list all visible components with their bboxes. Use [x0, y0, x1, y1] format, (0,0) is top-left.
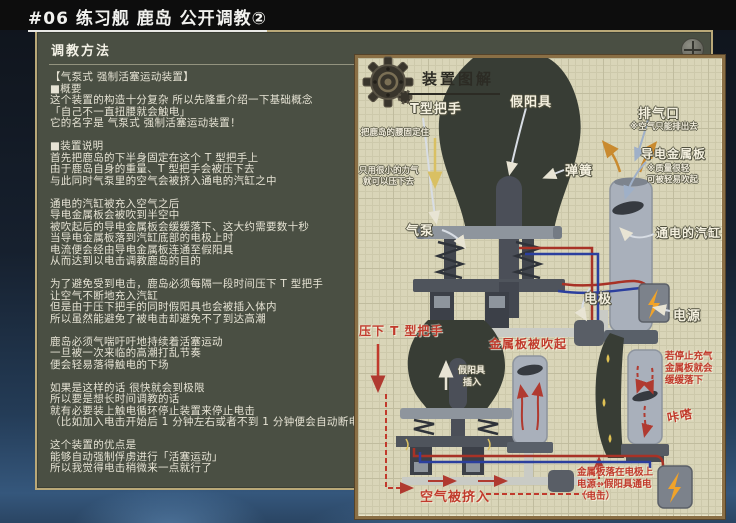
label-electrode: 电极: [584, 288, 612, 307]
note-shock-3: （电击）: [577, 488, 615, 502]
page-title: #06 练习舰 鹿岛 公开调教②: [28, 4, 267, 32]
label-t-handle: T型把手: [410, 98, 462, 117]
title-bar: #06 练习舰 鹿岛 公开调教②: [0, 0, 736, 30]
label-spring: 弹簧: [565, 160, 593, 179]
label-air-in: 空气被挤入: [420, 486, 490, 505]
label-cylinder: 通电的汽缸: [656, 224, 721, 241]
label-air-pump: 气泵: [406, 220, 434, 239]
power-box: [639, 284, 669, 322]
power-box-discharge: [658, 466, 692, 508]
note-force-2: 就可以压下去: [363, 175, 414, 187]
note-exhaust: ※空气只能排出去: [630, 120, 698, 132]
label-press-handle: 压下 T 型把手: [359, 322, 444, 339]
diagram-title: 装置图解: [408, 68, 500, 95]
label-power: 电源: [673, 305, 701, 324]
method-panel-header: 调教方法: [49, 40, 363, 65]
label-dildo: 假阳具: [510, 91, 552, 110]
device-diagram-panel: 装置图解: [355, 55, 725, 519]
label-plate-blown: 金属板被吹起: [489, 335, 567, 352]
note-fix-waist: 把鹿岛的腰固定住: [361, 126, 429, 138]
label-metal-plate: 导电金属板: [641, 145, 706, 162]
note-plate-2: 可被轻易吹起: [647, 173, 698, 185]
note-insert-2: 插入: [463, 375, 481, 388]
note-stop-3: 缓缓落下: [665, 372, 703, 386]
